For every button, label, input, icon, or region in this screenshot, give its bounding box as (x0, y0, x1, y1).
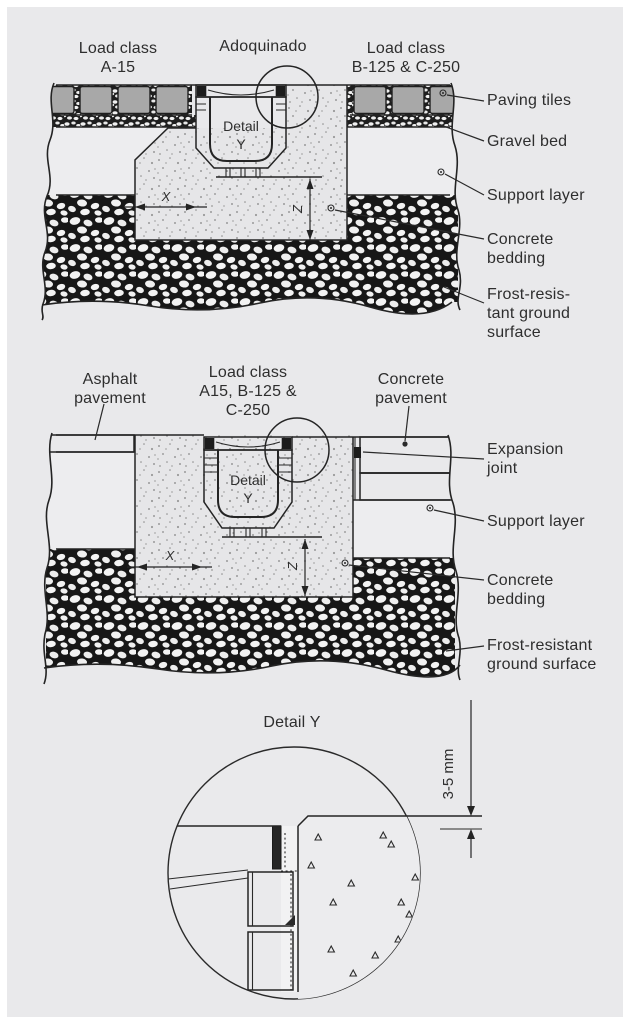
detail-edge-rail-section (273, 826, 282, 869)
d1-callout-concrete-bedding-line2: bedding (487, 250, 545, 267)
d1-title-left-line1: Load class (79, 40, 158, 57)
d2-title-right-line2: pavement (375, 390, 447, 407)
d1-detail-marker-line2: Y (236, 136, 246, 152)
d2-dim-z-label: Z (285, 561, 300, 571)
concrete-pavement-lower-course (360, 473, 452, 500)
d2-title-left-line1: Asphalt (83, 371, 138, 388)
gravel-bed-layer-right (347, 115, 455, 127)
d1-callout-gravel-bed: Gravel bed (487, 133, 567, 150)
leader-concrete-pavement (405, 406, 409, 441)
paving-tile (156, 87, 188, 114)
support-layer-right-2 (353, 500, 455, 558)
d1-detail-marker-line1: Detail (223, 118, 259, 134)
d1-callout-frost-line3: surface (487, 324, 541, 341)
paving-tile (354, 87, 386, 114)
d2-callout-concrete-bedding-line1: Concrete (487, 572, 554, 589)
d1-callout-frost-line1: Frost-resis- (487, 286, 570, 303)
paving-tile (80, 87, 112, 114)
d1-title-right-line2: B-125 & C-250 (352, 59, 460, 76)
detail-y-view: Detail Y 3-5 mm (168, 700, 482, 1005)
d2-title-center-line1: Load class (209, 364, 288, 381)
diagram-paved-installation: Load class A-15 Adoquinado Load class B-… (14, 38, 585, 341)
paving-tile (392, 87, 424, 114)
grate-edge-rail-left-2 (205, 438, 215, 449)
d2-callout-concrete-bedding-line2: bedding (487, 591, 545, 608)
installation-diagram-svg: Load class A-15 Adoquinado Load class B-… (0, 0, 630, 1024)
grate-edge-rail-right-2 (282, 438, 292, 449)
d3-title: Detail Y (263, 714, 320, 731)
d1-callout-paving-tiles: Paving tiles (487, 92, 571, 109)
grate-edge-rail-left (197, 86, 207, 96)
d2-detail-marker-line1: Detail (230, 472, 266, 488)
d1-callout-support-layer: Support layer (487, 187, 585, 204)
asphalt-layer (46, 435, 134, 452)
d1-title-right-line1: Load class (367, 40, 446, 57)
expansion-joint (354, 437, 361, 500)
dimension-3-5mm (467, 700, 475, 858)
d1-dim-z-label: Z (290, 204, 305, 214)
paving-tile (430, 87, 456, 114)
paving-tiles-row (44, 87, 456, 114)
d2-dim-x-label: X (165, 548, 176, 563)
d2-callout-frost-line1: Frost-resistant (487, 637, 593, 654)
detail-joint-gap (281, 826, 298, 992)
support-layer-right (347, 127, 455, 195)
d2-callout-frost-line2: ground surface (487, 656, 597, 673)
d2-title-center-line2: A15, B-125 & (199, 383, 297, 400)
d2-callout-expansion-line1: Expansion (487, 441, 564, 458)
channel-installation-drawing: Load class A-15 Adoquinado Load class B-… (0, 0, 630, 1024)
d1-callout-concrete-bedding-line1: Concrete (487, 231, 554, 248)
d3-dimension-label: 3-5 mm (440, 749, 457, 800)
d1-title-center: Adoquinado (219, 38, 306, 55)
d1-dim-x-label: X (161, 189, 172, 204)
d1-callout-frost-line2: tant ground (487, 305, 570, 322)
grate-edge-rail-right (276, 86, 286, 96)
d2-title-left-line2: pavement (74, 390, 146, 407)
d2-callout-expansion-line2: joint (486, 460, 518, 477)
d1-title-left-line2: A-15 (101, 59, 136, 76)
diagram-asphalt-concrete-installation: Asphalt pavement Load class A15, B-125 &… (16, 364, 597, 694)
gravel-bed-layer-left (42, 115, 196, 127)
d2-detail-marker-line2: Y (243, 490, 253, 506)
d2-callout-support-layer: Support layer (487, 513, 585, 530)
grate-profile-curve (208, 90, 274, 95)
d2-title-center-line3: C-250 (226, 402, 271, 419)
paving-tile (118, 87, 150, 114)
d2-title-right-line1: Concrete (378, 371, 445, 388)
support-layer-left-2 (46, 452, 135, 549)
